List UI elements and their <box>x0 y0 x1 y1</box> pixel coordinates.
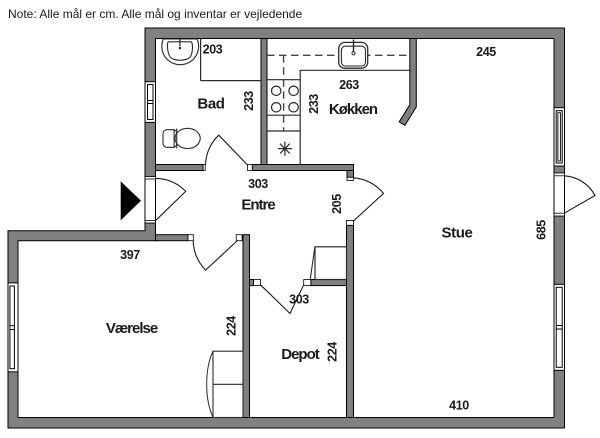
svg-text:303: 303 <box>289 293 309 307</box>
svg-text:203: 203 <box>203 43 223 57</box>
svg-text:245: 245 <box>476 45 496 59</box>
svg-text:224: 224 <box>326 342 340 362</box>
svg-text:205: 205 <box>330 194 344 214</box>
svg-text:263: 263 <box>339 78 359 92</box>
svg-text:Værelse: Værelse <box>106 320 158 337</box>
svg-text:Bad: Bad <box>197 95 224 112</box>
svg-text:410: 410 <box>449 399 469 413</box>
svg-text:233: 233 <box>307 94 321 114</box>
svg-text:Stue: Stue <box>442 225 473 242</box>
svg-text:233: 233 <box>242 91 256 111</box>
svg-text:Entre: Entre <box>241 196 275 213</box>
svg-text:Depot: Depot <box>281 346 320 363</box>
svg-text:397: 397 <box>120 248 140 262</box>
svg-text:685: 685 <box>535 220 549 240</box>
svg-text:224: 224 <box>225 316 239 336</box>
svg-text:Køkken: Køkken <box>329 101 378 118</box>
svg-text:Note: Alle mål er cm. Alle mål: Note: Alle mål er cm. Alle mål og invent… <box>8 7 302 21</box>
svg-text:303: 303 <box>248 177 268 191</box>
